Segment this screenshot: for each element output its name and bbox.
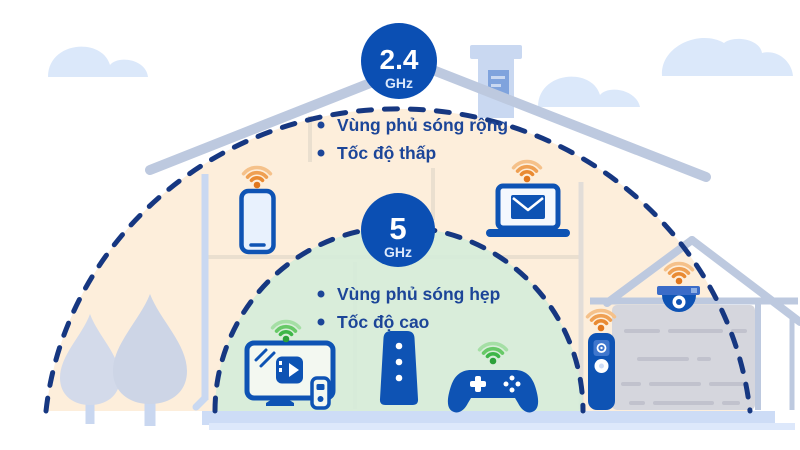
door-slat [629,401,645,405]
phone-body [242,191,274,252]
badge-unit: GHz [385,75,413,91]
speaker-button-center [599,364,604,369]
film-perf [279,361,282,365]
gamepad-button [510,388,515,393]
ground-shadow [209,423,795,430]
bullet-dot [318,291,325,298]
film-perf [279,368,282,372]
wifi-dot [524,176,531,183]
email-envelope [511,195,545,219]
router-body [380,331,418,405]
router-led [396,375,403,382]
chimney-cap [470,45,522,59]
ground [202,411,795,430]
bullet-text: Vùng phủ sóng hẹp [337,284,500,304]
speaker-dot [600,347,602,349]
smartphone-icon [242,191,274,252]
door-slat [709,382,746,386]
door-slat [731,329,747,333]
router-led [396,343,403,350]
dpad [475,376,481,392]
laptop-base [486,229,570,237]
wifi-dot [490,358,497,365]
cloud [48,47,148,77]
wifi-dot [676,278,683,285]
badge-value: 2.4 [380,44,419,75]
door-slat [722,401,740,405]
ground-strip [202,411,775,425]
gamepad-button [510,376,515,381]
bullet-dot [318,319,325,326]
router-led [396,359,403,366]
wifi-dot [283,336,290,343]
camera-mount-tab [691,288,697,293]
bullet-text: Tốc độ thấp [337,143,436,163]
badge-unit: GHz [384,244,412,260]
door-slat [649,382,701,386]
badge-value: 5 [389,211,406,246]
scene: 2.4 GHz 5 GHz Vùng phủ sóng rộng Tốc độ … [0,0,800,450]
cloud [538,77,640,107]
wifi-bands-infographic: 2.4 GHz 5 GHz Vùng phủ sóng rộng Tốc độ … [0,0,800,450]
bullet-dot [318,150,325,157]
door-slat [653,401,714,405]
door-slat [624,329,660,333]
bullet-text: Tốc độ cao [337,312,429,332]
badge-5ghz: 5 GHz [361,193,435,267]
bullet-dot [318,122,325,129]
remote-button [318,396,324,402]
cloud [662,38,793,76]
chimney-vent-slot [491,84,501,87]
camera-pupil [676,299,682,305]
smart-tv-icon [247,343,333,408]
remote-button [317,384,325,390]
router-icon [380,331,418,405]
door-slat [697,357,711,361]
chimney-vent-slot [491,76,505,79]
wifi-dot [254,182,261,189]
door-slat [621,382,641,386]
laptop-email-icon [486,186,570,237]
bullet-text: Vùng phủ sóng rộng [337,115,508,135]
gamepad-button [504,382,509,387]
gamepad-button [516,382,521,387]
badge-24ghz: 2.4 GHz [361,23,437,99]
smart-speaker-icon [588,333,615,410]
door-slat [668,329,723,333]
remote-icon [312,378,329,408]
wifi-dot [598,325,605,332]
door-slat [637,357,689,361]
